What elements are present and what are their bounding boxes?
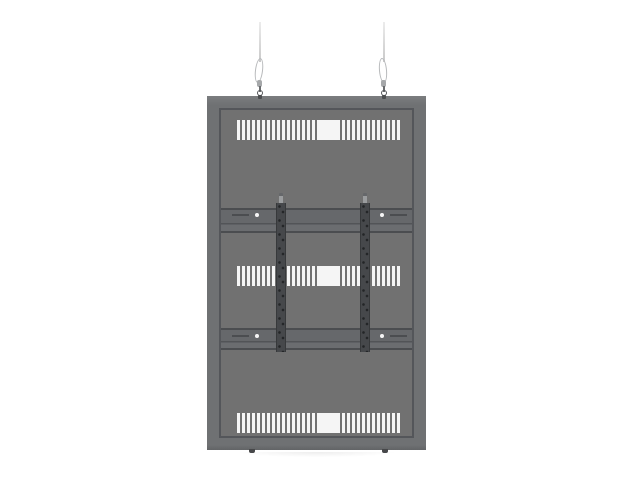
- panel-foot-left: [249, 449, 255, 453]
- crossbar-upper: [221, 208, 412, 233]
- bar-end-slot-left: [232, 335, 249, 337]
- vent-row-top: [237, 120, 400, 140]
- suspension-wire-right: [378, 22, 390, 100]
- bar-end-slot-right: [390, 214, 407, 216]
- mount-rail-right: [360, 203, 370, 352]
- mount-rail-left: [276, 203, 286, 352]
- product-image-display-ceiling-mount: [0, 0, 640, 480]
- screw-dot-right: [380, 334, 384, 338]
- eyebolt-base: [258, 95, 262, 99]
- rail-pin-left: [279, 193, 283, 203]
- steel-wire: [383, 22, 385, 62]
- screw-dot-right: [380, 213, 384, 217]
- screw-dot-left: [255, 334, 259, 338]
- rail-pin-right: [363, 193, 367, 203]
- steel-wire: [259, 22, 261, 62]
- vent-center-box: [317, 413, 337, 433]
- mount-panel: [207, 96, 426, 450]
- vent-row-bottom: [237, 413, 400, 433]
- vent-center-box: [317, 120, 337, 140]
- screw-dot-left: [255, 213, 259, 217]
- suspension-wire-left: [254, 22, 266, 100]
- bar-end-slot-right: [390, 335, 407, 337]
- panel-foot-right: [382, 449, 388, 453]
- crossbar-lower: [221, 328, 412, 350]
- bar-end-slot-left: [232, 214, 249, 216]
- vent-center-box: [317, 266, 337, 286]
- eyebolt-base: [382, 95, 386, 99]
- vent-row-middle: [237, 266, 400, 286]
- panel-shadow: [210, 452, 424, 459]
- panel-back: [219, 108, 414, 438]
